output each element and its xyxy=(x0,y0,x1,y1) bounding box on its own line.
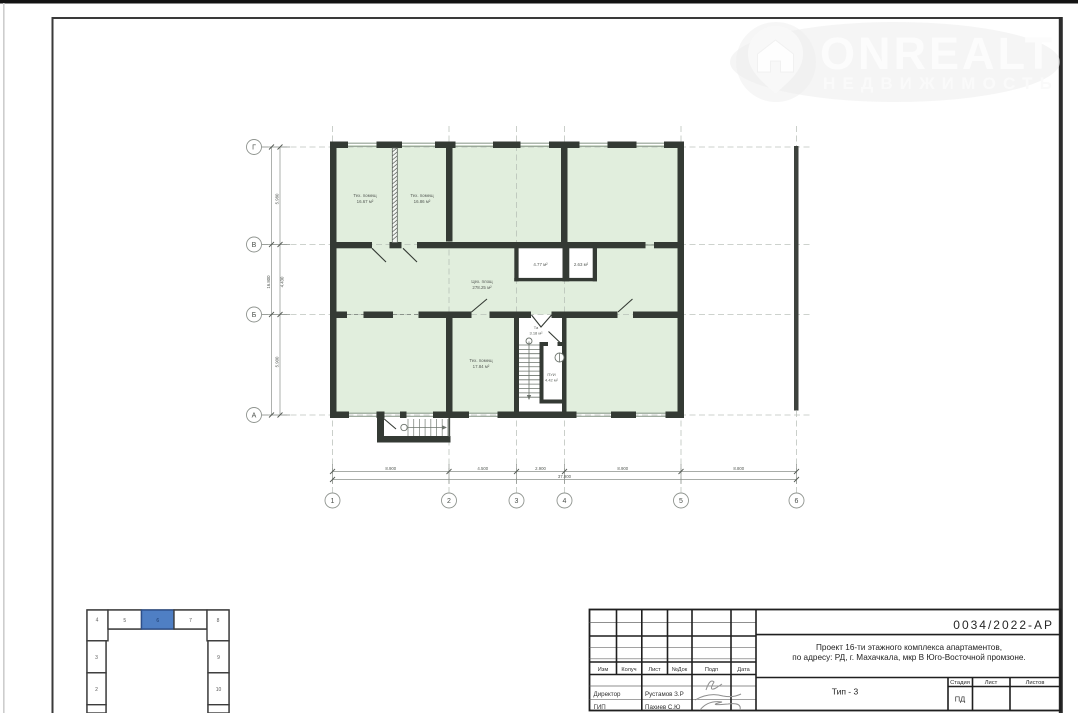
svg-text:Тип - 3: Тип - 3 xyxy=(832,687,859,697)
svg-text:5: 5 xyxy=(679,498,683,505)
svg-text:4.77 м²: 4.77 м² xyxy=(533,262,548,267)
svg-text:Дата: Дата xyxy=(737,667,750,673)
svg-text:4.42 м²: 4.42 м² xyxy=(545,378,559,383)
svg-text:Г: Г xyxy=(252,144,256,151)
svg-text:6: 6 xyxy=(795,498,799,505)
svg-text:2: 2 xyxy=(447,498,451,505)
svg-text:2.63 м²: 2.63 м² xyxy=(574,262,589,267)
svg-text:Стадия: Стадия xyxy=(950,680,970,686)
svg-text:2: 2 xyxy=(95,687,98,693)
svg-text:10: 10 xyxy=(216,687,222,693)
svg-text:8.900: 8.900 xyxy=(617,466,628,471)
svg-text:4: 4 xyxy=(563,498,567,505)
svg-text:0034/2022-АР: 0034/2022-АР xyxy=(953,618,1054,632)
svg-text:5: 5 xyxy=(123,618,126,624)
svg-text:Рустамов З.Р: Рустамов З.Р xyxy=(645,691,684,698)
svg-text:9: 9 xyxy=(217,655,220,661)
svg-text:ONREALT: ONREALT xyxy=(820,28,1055,79)
svg-text:16.67 м²: 16.67 м² xyxy=(357,199,374,204)
svg-text:16.800: 16.800 xyxy=(266,275,271,289)
svg-text:8.800: 8.800 xyxy=(733,466,744,471)
svg-text:3.18 м²: 3.18 м² xyxy=(530,331,544,336)
svg-text:4.430: 4.430 xyxy=(280,276,285,287)
svg-text:5.900: 5.900 xyxy=(275,356,280,367)
svg-text:Колуч: Колуч xyxy=(621,667,636,673)
svg-text:Директор: Директор xyxy=(594,691,622,698)
svg-text:17.84 м²: 17.84 м² xyxy=(473,364,490,369)
svg-text:Лист: Лист xyxy=(648,667,661,673)
svg-text:Подп: Подп xyxy=(705,667,718,673)
svg-text:Цех. площ: Цех. площ xyxy=(471,279,493,284)
svg-text:16.86 м²: 16.86 м² xyxy=(414,199,431,204)
svg-text:ПУИ: ПУИ xyxy=(547,372,555,377)
svg-text:Тех. помещ: Тех. помещ xyxy=(353,193,377,198)
svg-text:Проект 16-ти этажного комплекс: Проект 16-ти этажного комплекса апартаме… xyxy=(816,643,1002,652)
svg-text:№Док: №Док xyxy=(672,667,688,673)
svg-text:Та: Та xyxy=(534,325,539,330)
svg-text:5.980: 5.980 xyxy=(275,193,280,204)
svg-text:Лист: Лист xyxy=(985,680,998,686)
svg-text:3: 3 xyxy=(95,655,98,661)
svg-text:8.900: 8.900 xyxy=(385,466,396,471)
svg-text:В: В xyxy=(252,242,257,249)
svg-text:Б: Б xyxy=(252,312,257,319)
svg-text:1: 1 xyxy=(331,498,335,505)
svg-text:Листов: Листов xyxy=(1026,680,1045,686)
svg-text:НЕДВИЖИМОСТЬ: НЕДВИЖИМОСТЬ xyxy=(823,74,1059,93)
svg-text:Тех. помещ: Тех. помещ xyxy=(410,193,434,198)
svg-text:ПД: ПД xyxy=(955,695,965,704)
svg-text:по адресу: РД, г. Махачкала, м: по адресу: РД, г. Махачкала, мкр В Юго-В… xyxy=(792,653,1025,662)
svg-text:6: 6 xyxy=(156,618,159,624)
svg-text:37.900: 37.900 xyxy=(558,474,572,479)
svg-text:А: А xyxy=(252,412,257,419)
svg-text:Изм: Изм xyxy=(598,667,609,673)
svg-text:3: 3 xyxy=(515,498,519,505)
svg-text:7: 7 xyxy=(189,618,192,624)
svg-text:8: 8 xyxy=(217,618,220,624)
svg-text:4: 4 xyxy=(96,618,99,624)
svg-text:2.900: 2.900 xyxy=(535,466,546,471)
svg-text:ГИП: ГИП xyxy=(594,704,606,711)
svg-text:278.25 м²: 278.25 м² xyxy=(472,285,492,290)
svg-text:Пахиев С.Ю: Пахиев С.Ю xyxy=(645,704,680,711)
svg-text:Тех. помещ: Тех. помещ xyxy=(469,358,493,363)
svg-text:4.500: 4.500 xyxy=(477,466,488,471)
